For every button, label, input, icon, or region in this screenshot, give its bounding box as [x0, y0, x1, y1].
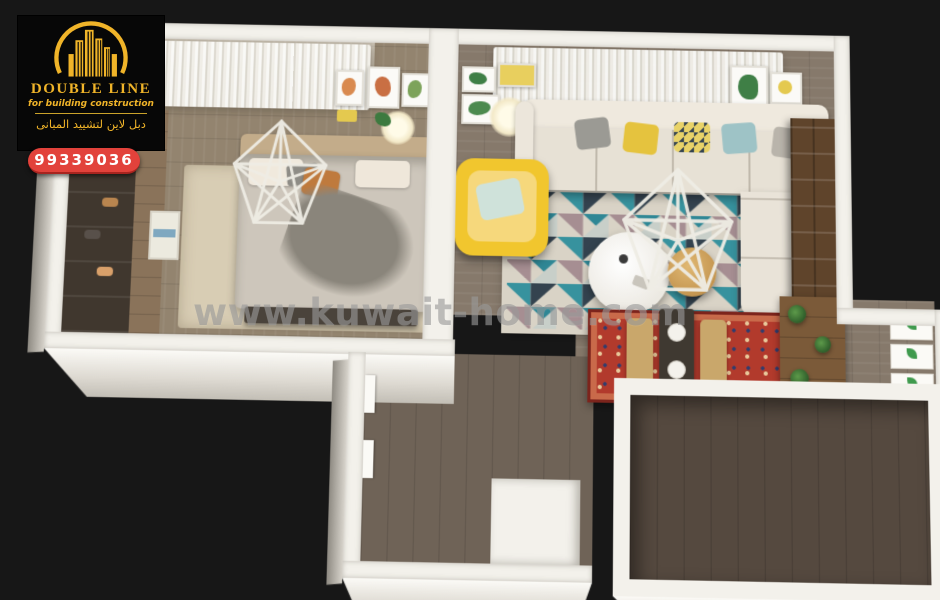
shoe — [84, 230, 101, 239]
shelving-unit — [790, 118, 836, 314]
shoe — [102, 198, 119, 207]
wall-art-frame — [401, 73, 430, 107]
art — [342, 78, 357, 96]
company-tagline: for building construction — [28, 99, 154, 109]
wall-art-frame — [367, 66, 400, 108]
art — [778, 80, 792, 94]
logo-panel: DOUBLE LINE for building construction دب… — [18, 16, 164, 150]
scene: www.kuwait-home.com — [0, 0, 940, 600]
entrance-block — [490, 478, 580, 565]
sofa-pillow-gray — [574, 116, 612, 150]
logo-divider — [35, 113, 147, 114]
wall-art-frame — [770, 72, 802, 104]
leaning-canvas — [148, 211, 180, 260]
company-name: DOUBLE LINE — [31, 81, 151, 98]
sofa-pillow-yellow — [622, 121, 659, 155]
wall-art-frame — [335, 70, 364, 106]
art — [469, 72, 487, 84]
leaf-print-panel — [890, 344, 933, 370]
hallway-door-panel — [364, 375, 375, 413]
art — [738, 74, 758, 99]
living-right-wall — [834, 36, 854, 325]
hallway-door-panel — [363, 440, 374, 478]
phone-badge: 99339036 — [28, 148, 140, 174]
company-name-arabic: دبل لاين لتشييد المبانى — [36, 117, 146, 131]
yellow-armchair — [455, 158, 549, 257]
plate — [667, 360, 685, 379]
wall-art-frame — [462, 66, 496, 92]
empty-room-floor — [629, 395, 931, 585]
bed-pillow — [355, 160, 410, 188]
plant — [815, 336, 832, 353]
geometric-pendant-light — [212, 115, 347, 238]
sofa-pillow-patterned — [674, 122, 710, 153]
kitchen-step-wall — [837, 308, 940, 327]
shoe — [97, 267, 114, 277]
geometric-pendant-light — [601, 163, 754, 308]
empty-room — [613, 378, 940, 600]
bedroom-wall-front-face — [41, 348, 454, 404]
yellow-card — [337, 110, 357, 122]
sofa-pillow-teal — [721, 122, 758, 154]
art — [468, 101, 490, 115]
watermark-text: www.kuwait-home.com — [193, 291, 688, 334]
company-logo: DOUBLE LINE for building construction دب… — [18, 16, 164, 174]
canvas-art — [153, 229, 176, 238]
buildings-arch-icon — [45, 16, 137, 80]
leaf-icon — [907, 348, 917, 359]
art — [375, 76, 392, 96]
art — [408, 80, 422, 98]
plant — [788, 305, 807, 324]
yellow-frame — [498, 63, 536, 88]
